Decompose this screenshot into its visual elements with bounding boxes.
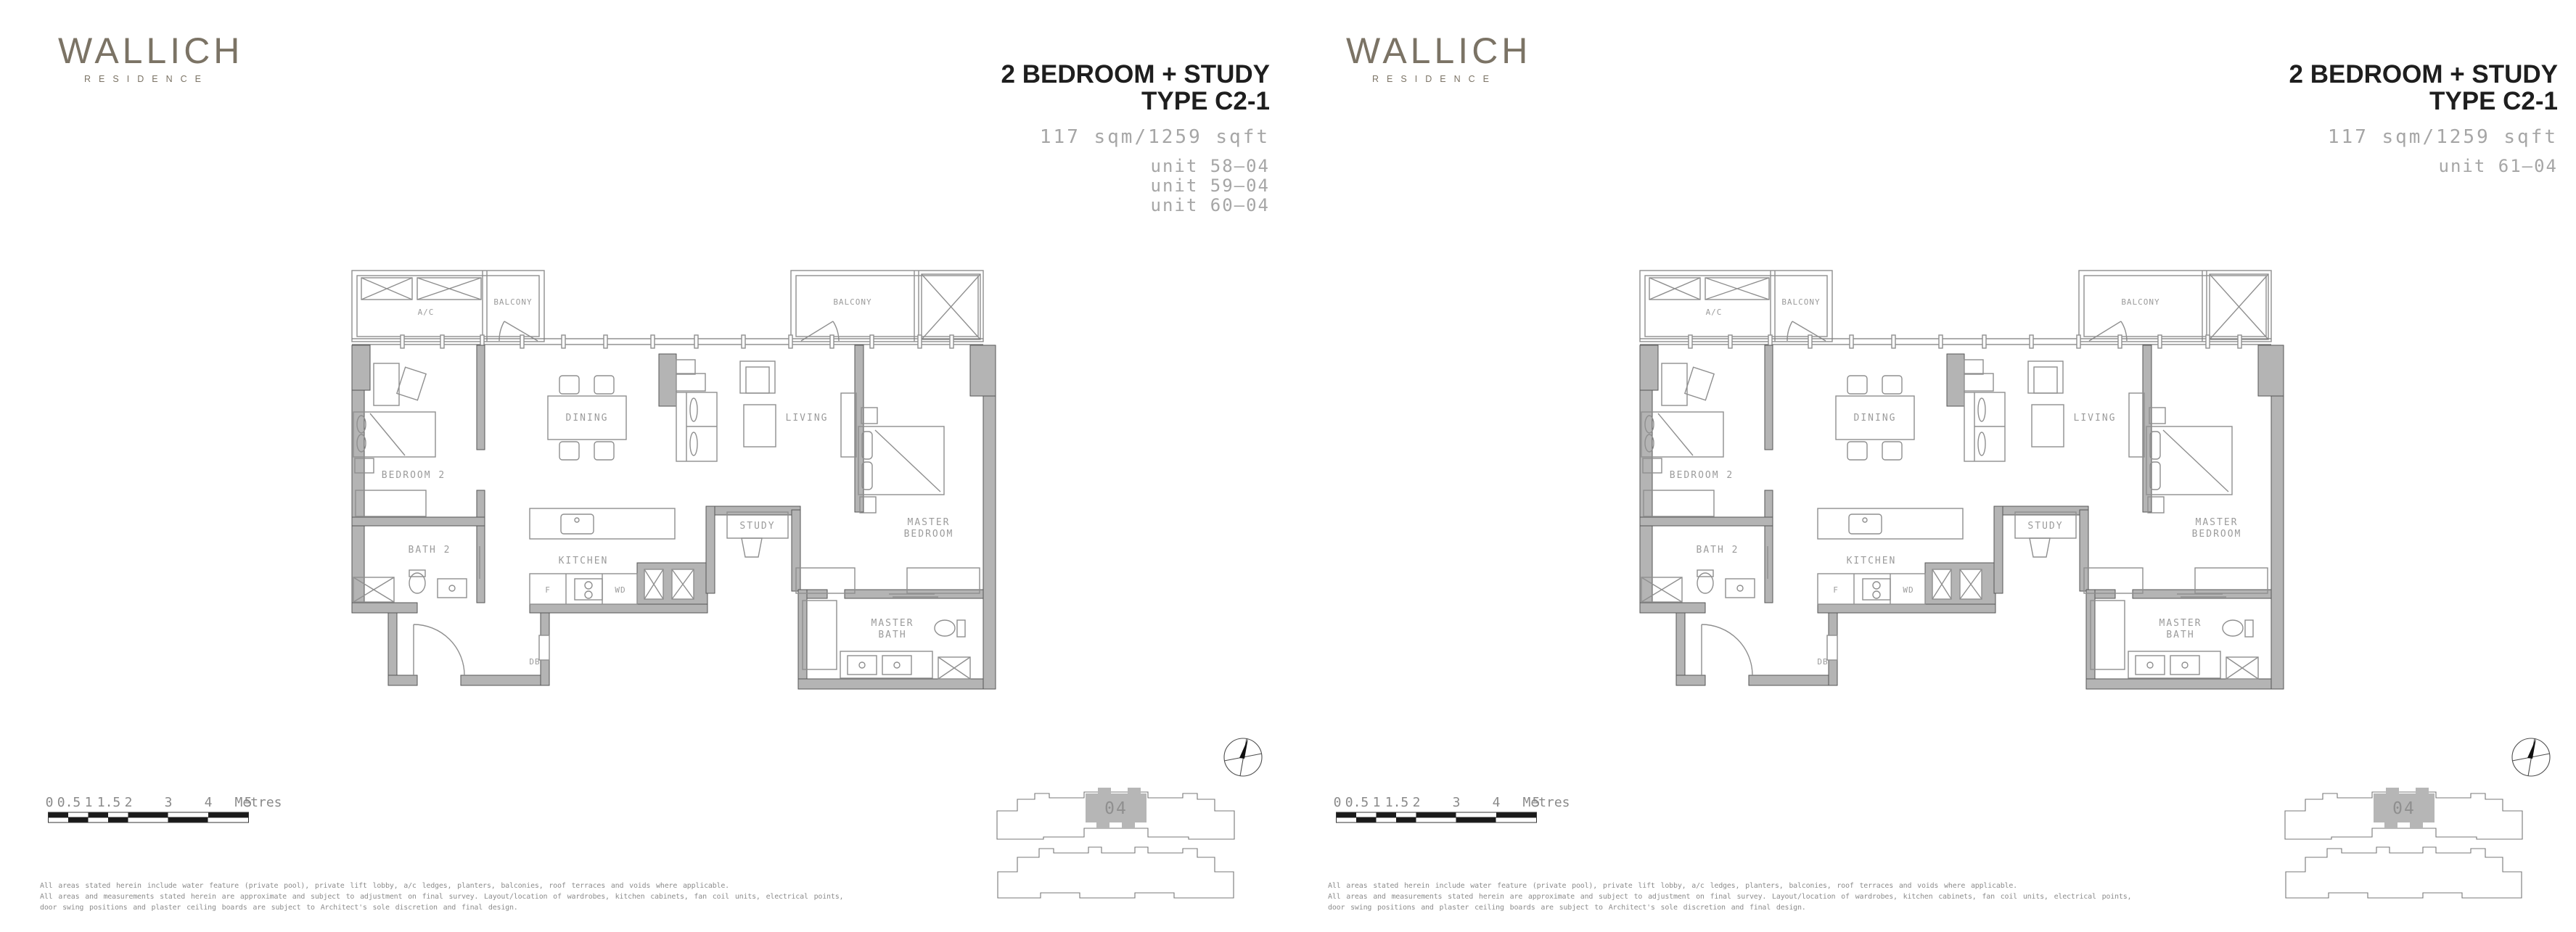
north-arrow-icon <box>2512 738 2550 776</box>
room-label-bath2: BATH 2 <box>409 545 451 556</box>
unit-type-title: 2 BEDROOM + STUDY TYPE C2-1 <box>2289 61 2558 115</box>
key-plan-drawing: 04 <box>2281 730 2560 907</box>
armchair-icon <box>740 361 775 393</box>
tv-console-icon <box>2129 393 2144 457</box>
panel-right: WALLICH RESIDENCE 2 BEDROOM + STUDY TYPE… <box>1288 0 2576 932</box>
floor-plan: A/C BALCONY BALCONY <box>319 260 1009 717</box>
room-label-master-bedroom-2: BEDROOM <box>904 529 954 540</box>
room-label-master-bath-1: MASTER <box>871 618 914 629</box>
room-label-living: LIVING <box>786 413 829 424</box>
entry-door-swing <box>1702 624 1752 675</box>
master-bedroom-furniture: MASTER BEDROOM <box>796 408 980 597</box>
scale-bar-graphic <box>48 812 249 823</box>
label-fridge: F <box>545 585 551 595</box>
title-line-1: 2 BEDROOM + STUDY <box>1001 61 1270 88</box>
sink-icon <box>1849 514 1882 534</box>
disclaimer-line: door swing positions and plaster ceiling… <box>40 902 867 913</box>
label-washer-dryer: WD <box>615 585 625 595</box>
room-label-master-bedroom-1: MASTER <box>908 517 951 528</box>
scale-numbers: 0 0.5 1 1.5 2 3 4 5 Metres <box>48 795 353 809</box>
room-label-living: LIVING <box>2074 413 2117 424</box>
title-line-1: 2 BEDROOM + STUDY <box>2289 61 2558 88</box>
study-furniture: STUDY <box>2015 512 2076 557</box>
scale-numbers: 0 0.5 1 1.5 2 3 4 5 Metres <box>1336 795 1641 809</box>
bath2-fixtures: BATH 2 <box>353 545 480 602</box>
highlighted-unit: 04 <box>2374 788 2435 828</box>
living-furniture: LIVING <box>676 361 856 461</box>
toilet-icon <box>1697 573 1713 593</box>
room-label-bedroom2: BEDROOM 2 <box>382 470 446 481</box>
title-block: 2 BEDROOM + STUDY TYPE C2-1 117 sqm/1259… <box>1001 61 1270 215</box>
room-label-master-bath-2: BATH <box>878 630 906 640</box>
coffee-table-icon <box>2032 405 2064 447</box>
balcony-right: BALCONY <box>791 271 983 342</box>
north-arrow-icon <box>1224 738 1262 776</box>
brand-logo: WALLICH RESIDENCE <box>58 32 231 84</box>
unit-list: unit 61—04 <box>2289 157 2558 176</box>
entry-door-swing <box>414 624 464 675</box>
master-bath-fixtures: MASTER BATH <box>803 601 970 679</box>
room-label-bath2: BATH 2 <box>1697 545 1739 556</box>
brand-logo: WALLICH RESIDENCE <box>1346 32 1519 84</box>
disclaimer-line: All areas stated herein include water fe… <box>40 881 867 891</box>
unit-list: unit 58—04 unit 59—04 unit 60—04 <box>1001 157 1270 215</box>
highlighted-unit: 04 <box>1086 788 1147 828</box>
disclaimer-text: All areas stated herein include water fe… <box>40 881 867 913</box>
room-label-study: STUDY <box>2027 521 2063 532</box>
disclaimer-line: All areas and measurements stated herein… <box>1328 891 2155 902</box>
label-washer-dryer: WD <box>1903 585 1913 595</box>
master-bath-fixtures: MASTER BATH <box>2091 601 2258 679</box>
room-label-kitchen: KITCHEN <box>559 556 609 566</box>
coffee-table-icon <box>744 405 776 447</box>
balcony-right: BALCONY <box>2079 271 2271 342</box>
ac-louvre-icon <box>361 278 481 300</box>
disclaimer-text: All areas stated herein include water fe… <box>1328 881 2155 913</box>
label-db: DB <box>1817 657 1828 667</box>
label-db: DB <box>529 657 540 667</box>
room-label-balcony-left: BALCONY <box>1781 297 1820 307</box>
brand-name: WALLICH <box>58 32 231 70</box>
scale-bar: 0 0.5 1 1.5 2 3 4 5 Metres <box>1336 795 1641 827</box>
living-furniture: LIVING <box>1964 361 2144 461</box>
room-label-master-bedroom-2: BEDROOM <box>2192 529 2242 540</box>
scale-unit-label: Metres <box>1522 795 1570 810</box>
unit-stack-label: 04 <box>1104 799 1128 818</box>
bed-icon <box>858 426 944 495</box>
unit-number: unit 59—04 <box>1001 176 1270 196</box>
title-block: 2 BEDROOM + STUDY TYPE C2-1 117 sqm/1259… <box>2289 61 2558 176</box>
sink-icon <box>561 514 594 534</box>
floor-plan: A/C BALCONY BALCONY <box>1607 260 2297 717</box>
room-label-study: STUDY <box>739 521 775 532</box>
toilet-icon <box>935 620 955 636</box>
disclaimer-line: All areas and measurements stated herein… <box>40 891 867 902</box>
unit-type-title: 2 BEDROOM + STUDY TYPE C2-1 <box>1001 61 1270 115</box>
unit-number: unit 58—04 <box>1001 157 1270 176</box>
study-furniture: STUDY <box>727 512 788 557</box>
room-label-balcony-right: BALCONY <box>833 297 871 307</box>
armchair-icon <box>2028 361 2063 393</box>
bath2-fixtures: BATH 2 <box>1641 545 1768 602</box>
tv-console-icon <box>841 393 856 457</box>
brochure-page: WALLICH RESIDENCE 2 BEDROOM + STUDY TYPE… <box>0 0 2576 932</box>
unit-number: unit 61—04 <box>2289 157 2558 176</box>
brand-subtitle: RESIDENCE <box>58 74 231 84</box>
room-label-kitchen: KITCHEN <box>1847 556 1897 566</box>
area-text: 117 sqm/1259 sqft <box>1001 126 1270 148</box>
toilet-icon <box>409 573 425 593</box>
room-label-bedroom2: BEDROOM 2 <box>1670 470 1734 481</box>
room-label-balcony-right: BALCONY <box>2121 297 2159 307</box>
planter-box-icon <box>922 274 980 339</box>
ac-ledge-and-balcony: A/C BALCONY <box>352 271 544 342</box>
scale-bar: 0 0.5 1 1.5 2 3 4 5 Metres <box>48 795 353 827</box>
unit-stack-label: 04 <box>2392 799 2416 818</box>
ac-ledge-and-balcony: A/C BALCONY <box>1640 271 1832 342</box>
planter-box-icon <box>2210 274 2268 339</box>
area-text: 117 sqm/1259 sqft <box>2289 126 2558 148</box>
title-line-2: TYPE C2-1 <box>2289 88 2558 115</box>
disclaimer-line: door swing positions and plaster ceiling… <box>1328 902 2155 913</box>
disclaimer-line: All areas stated herein include water fe… <box>1328 881 2155 891</box>
balcony-door-swing <box>499 321 538 341</box>
master-bedroom-furniture: MASTER BEDROOM <box>2084 408 2268 597</box>
basin-icon <box>438 579 467 598</box>
floor-plan-drawing: A/C BALCONY BALCONY <box>1607 260 2297 717</box>
scale-bar-graphic <box>1336 812 1537 823</box>
label-fridge: F <box>1833 585 1839 595</box>
brand-name: WALLICH <box>1346 32 1519 70</box>
room-label-dining: DINING <box>1854 413 1897 424</box>
room-label-balcony-left: BALCONY <box>493 297 532 307</box>
basin-icon <box>1726 579 1755 598</box>
ac-louvre-icon <box>1649 278 1769 300</box>
floor-plan-drawing: A/C BALCONY BALCONY <box>319 260 1009 717</box>
room-label-master-bath-2: BATH <box>2166 630 2194 640</box>
title-line-2: TYPE C2-1 <box>1001 88 1270 115</box>
key-plan: 04 <box>2281 730 2560 907</box>
unit-number: unit 60—04 <box>1001 196 1270 215</box>
scale-unit-label: Metres <box>234 795 282 810</box>
room-label-dining: DINING <box>566 413 609 424</box>
room-label-master-bath-1: MASTER <box>2159 618 2202 629</box>
room-label-master-bedroom-1: MASTER <box>2196 517 2239 528</box>
key-plan: 04 <box>993 730 1272 907</box>
key-plan-drawing: 04 <box>993 730 1272 907</box>
room-label-ac: A/C <box>418 308 435 317</box>
balcony-door-swing <box>1787 321 1826 341</box>
panel-left: WALLICH RESIDENCE 2 BEDROOM + STUDY TYPE… <box>0 0 1288 932</box>
brand-subtitle: RESIDENCE <box>1346 74 1519 84</box>
room-label-ac: A/C <box>1706 308 1723 317</box>
toilet-icon <box>2223 620 2243 636</box>
bed-icon <box>2146 426 2232 495</box>
